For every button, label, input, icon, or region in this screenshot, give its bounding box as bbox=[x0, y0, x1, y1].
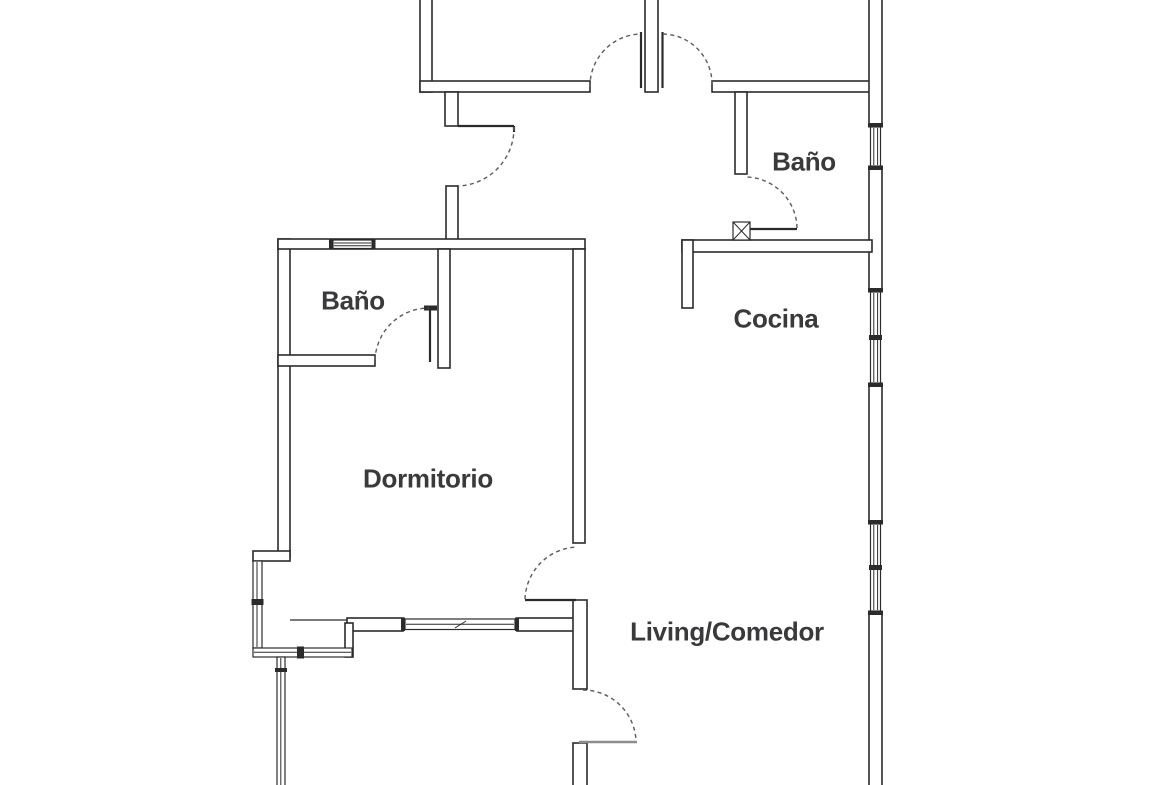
door-leaf-bano-right bbox=[733, 222, 797, 240]
room-label-cocina: Cocina bbox=[734, 304, 819, 335]
room-label-dormitorio: Dormitorio bbox=[363, 464, 493, 495]
walls bbox=[253, 0, 882, 785]
wall-topright-room-bottom bbox=[712, 81, 876, 92]
door-leaf-hallway bbox=[458, 126, 514, 132]
bay-window-left-pane bbox=[252, 561, 264, 648]
window-right-2 bbox=[868, 288, 883, 387]
floor-plan: Baño Dormitorio Baño Cocina Living/Comed… bbox=[0, 0, 1170, 785]
wall-hall-jamb-bottom bbox=[446, 186, 458, 240]
wall-top-center bbox=[645, 0, 658, 92]
wall-dormitorio-bottom-right bbox=[517, 618, 577, 631]
window-right-1 bbox=[868, 123, 883, 170]
room-label-bano-left: Baño bbox=[321, 286, 385, 317]
floor-plan-drawing bbox=[0, 0, 1170, 785]
wall-bano-right-left bbox=[735, 92, 747, 174]
windows bbox=[252, 123, 884, 785]
door-arc-hallway bbox=[458, 127, 514, 186]
window-right-3 bbox=[868, 520, 883, 615]
window-lower-left-wall bbox=[275, 657, 287, 785]
bay-window-top-connector bbox=[253, 551, 290, 561]
wall-hall-jamb-top bbox=[445, 92, 458, 126]
wall-right-exterior-seg1 bbox=[869, 0, 882, 125]
window-bano-top bbox=[329, 239, 376, 250]
wall-bano-left-top bbox=[278, 239, 585, 249]
door-arc-dormitorio bbox=[525, 547, 577, 599]
wall-right-exterior-seg4 bbox=[869, 613, 882, 785]
wall-bano-left-bottom bbox=[278, 355, 375, 366]
wall-cocina-left-stub bbox=[682, 240, 693, 308]
door-arc-living-bottom bbox=[583, 690, 636, 741]
wall-dormitorio-bottom-left bbox=[347, 618, 403, 631]
wall-living-left-lower bbox=[573, 743, 587, 785]
door-arc-topleft-room bbox=[590, 34, 641, 87]
wall-cocina-top bbox=[682, 240, 872, 252]
wall-dormitorio-right bbox=[573, 249, 585, 543]
wall-left-exterior bbox=[278, 239, 290, 557]
wall-topleft-room-bottom bbox=[420, 81, 590, 92]
door-arc-topright-room bbox=[663, 34, 712, 85]
door-arc-bano-right bbox=[746, 177, 797, 228]
wall-right-exterior-seg3 bbox=[869, 385, 882, 522]
door-leaf-bano-left bbox=[424, 306, 437, 363]
window-dormitorio-bottom bbox=[401, 618, 519, 632]
bay-window-bottom-pane bbox=[253, 647, 352, 659]
wall-bano-left-right bbox=[438, 249, 450, 368]
room-label-living-comedor: Living/Comedor bbox=[630, 617, 824, 648]
wall-topleft-room-left bbox=[420, 0, 432, 92]
wall-living-left-upper bbox=[573, 600, 587, 689]
room-label-bano-right: Baño bbox=[772, 147, 836, 178]
wall-right-exterior-seg2 bbox=[869, 168, 882, 290]
